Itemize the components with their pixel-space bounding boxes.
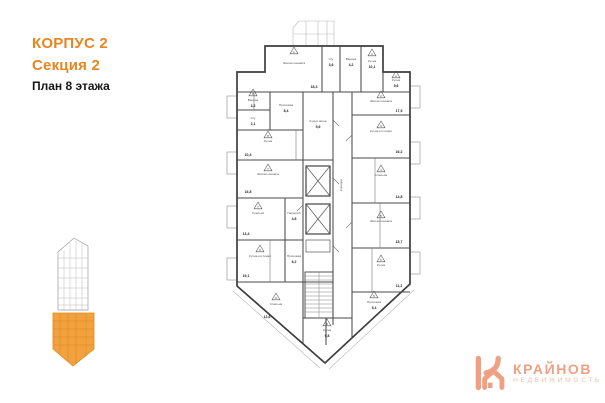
room-label: Кухня (392, 78, 401, 82)
room-area: 10,1 (369, 65, 376, 69)
room-label: Жилая комната (257, 172, 280, 176)
room-label: Кухня-гостиная (249, 254, 271, 258)
building-section-minimap (50, 236, 98, 374)
logo-tagline: НЕДВИЖИМОСТЬ (513, 378, 602, 385)
room-area: 10,4 (245, 153, 252, 157)
room-area: 12,6 (264, 315, 271, 319)
room-label: Кухня (264, 139, 273, 143)
room-label: Спальня (270, 302, 283, 306)
room-label: Прихожая (367, 300, 382, 304)
floor-title: План 8 этажа (32, 80, 110, 92)
krainov-logo: КРАЙНОВ НЕДВИЖИМОСТЬ (474, 354, 602, 392)
room-label: С/у (329, 57, 334, 61)
room-area: 4,8 (292, 217, 297, 221)
room-label: С/у (251, 116, 256, 120)
room-area: 4,2 (349, 63, 354, 67)
page: КОРПУС 2 Секция 2 План 8 этажа (0, 0, 605, 403)
room-label: Жилая комната (283, 61, 306, 65)
room-label: Жилая комната (370, 99, 393, 103)
room-label: Прихожая (279, 103, 294, 107)
room-label: Ванная (248, 98, 259, 102)
room-label: Кухня (377, 263, 386, 267)
room-area: 17,5 (396, 109, 403, 113)
room-label: Кухня-ниша (310, 119, 327, 123)
room-area: 5,6 (316, 125, 321, 129)
plan-header: КОРПУС 2 Секция 2 План 8 этажа (32, 36, 110, 92)
logo-text: КРАЙНОВ НЕДВИЖИМОСТЬ (513, 362, 602, 385)
room-area: 9,8 (325, 334, 330, 338)
room-area: 9,6 (394, 84, 399, 88)
room-label: Гардероб (287, 211, 301, 215)
section-2-highlight (53, 313, 94, 366)
room-label: Спальня (252, 211, 265, 215)
room-label: Кухня-гостиная (370, 129, 392, 133)
krainov-logo-icon (474, 354, 505, 392)
floor-plan: 1 1 2 2 3 4 5 6 8 8 7 7 6 9 9 5 Жилая ко… (188, 8, 424, 376)
room-area: 16,8 (245, 190, 252, 194)
logo-brand: КРАЙНОВ (513, 362, 602, 376)
room-area: 2,1 (251, 122, 256, 126)
building-title: КОРПУС 2 (32, 36, 110, 51)
room-label: Кухня (368, 59, 377, 63)
room-area: 15,7 (396, 240, 403, 244)
room-area: 11,2 (396, 284, 403, 288)
room-label: Спальня (375, 173, 388, 177)
room-label: Коридор (339, 179, 343, 191)
room-label: Ванная (346, 57, 357, 61)
room-area: 14,8 (396, 195, 403, 199)
room-area: 8,4 (284, 109, 289, 113)
room-area: 13,4 (243, 232, 250, 236)
room-area: 6,2 (292, 260, 297, 264)
room-area: 3,2 (251, 104, 256, 108)
room-label: Прихожая (287, 254, 302, 258)
roof-outline (293, 21, 334, 46)
room-area: 16,2 (396, 150, 403, 154)
room-label: Кухня (323, 328, 332, 332)
room-area: 19,1 (243, 274, 250, 278)
section-title: Секция 2 (32, 58, 110, 73)
room-area: 5,4 (372, 306, 377, 310)
room-area: 18,3 (311, 85, 318, 89)
room-label: Жилая комната (370, 219, 393, 223)
section-1-outline (58, 238, 88, 310)
room-area: 3,6 (329, 63, 334, 67)
